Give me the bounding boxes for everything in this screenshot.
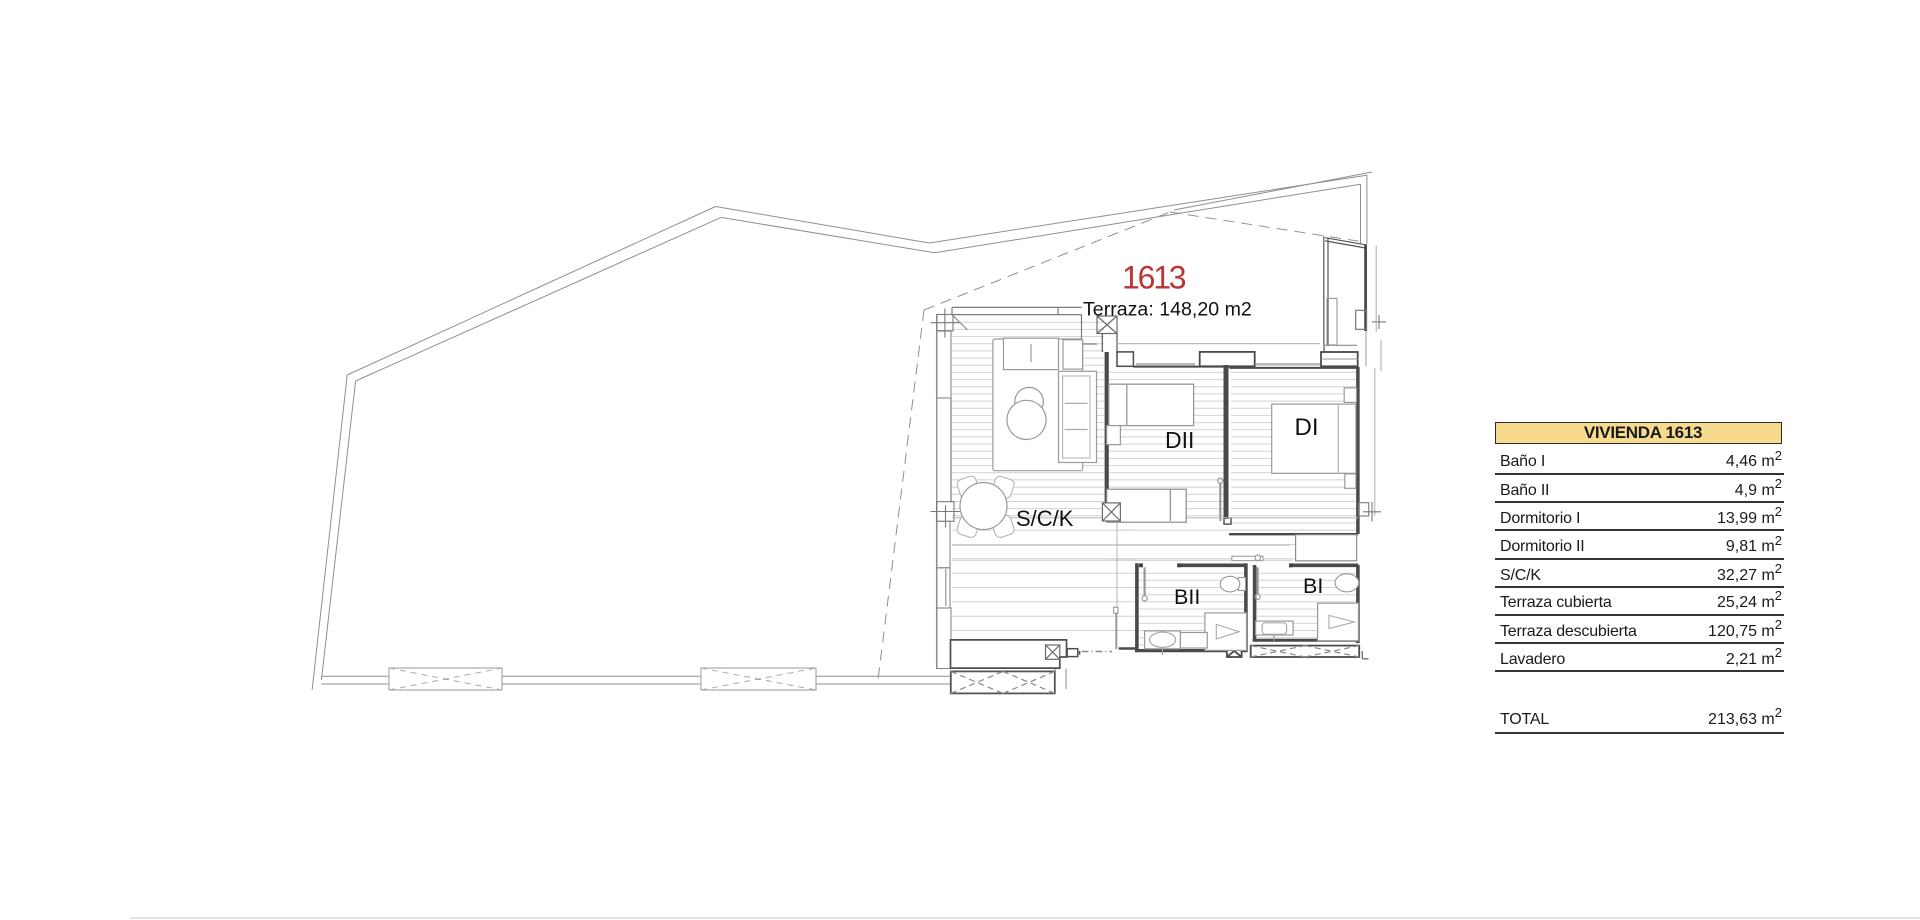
svg-text:BII: BII <box>1174 585 1200 609</box>
svg-text:1613: 1613 <box>1122 260 1186 296</box>
svg-text:S/C/K: S/C/K <box>1016 506 1074 531</box>
svg-text:BI: BI <box>1303 574 1323 598</box>
svg-text:Terraza: 148,20 m2: Terraza: 148,20 m2 <box>1083 298 1252 320</box>
svg-text:DII: DII <box>1165 427 1194 453</box>
svg-text:DI: DI <box>1295 414 1319 441</box>
